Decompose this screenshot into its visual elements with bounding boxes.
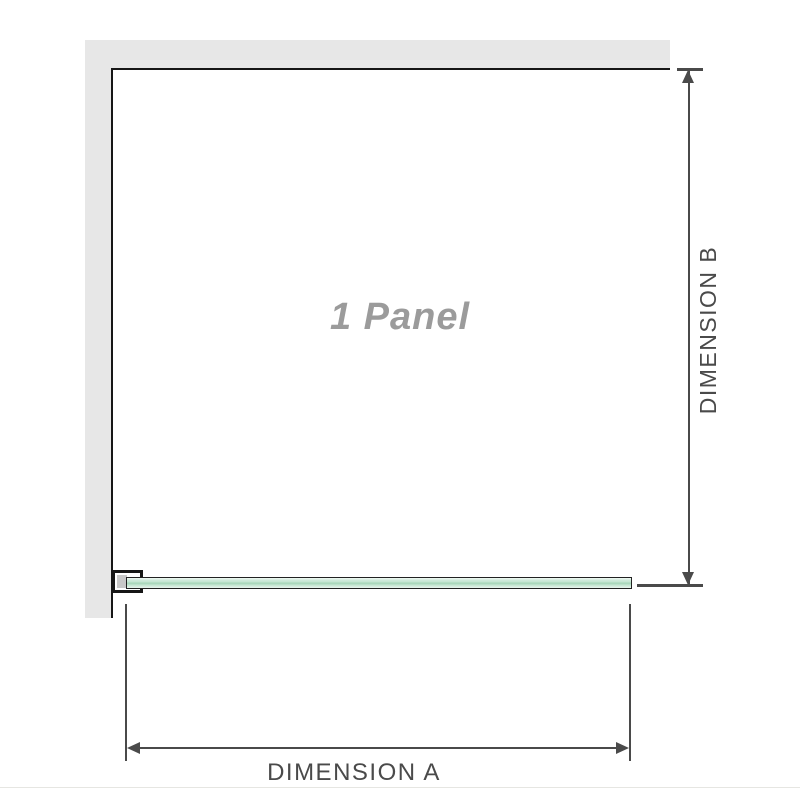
panel-left-edge [111, 68, 113, 618]
panel-count-label: 1 Panel [290, 296, 510, 339]
glass-panel-bar [126, 577, 632, 589]
shower-panel-diagram: 1 Panel DIMENSION B DIMENSION A [0, 0, 800, 800]
arrow-down-icon [682, 572, 694, 585]
dimension-a-extension-left [125, 604, 127, 761]
dimension-a-extension-right [629, 604, 631, 761]
wall-left [85, 40, 111, 618]
arrow-right-icon [616, 742, 629, 754]
panel-top-edge [111, 68, 670, 70]
wall-top [85, 40, 670, 68]
dimension-a-line [130, 747, 627, 749]
bottom-divider [0, 787, 800, 788]
dimension-a-label: DIMENSION A [254, 759, 454, 787]
arrow-up-icon [682, 70, 694, 83]
dimension-b-line [688, 71, 690, 584]
dimension-b-label: DIMENSION B [695, 245, 719, 415]
arrow-left-icon [127, 742, 140, 754]
